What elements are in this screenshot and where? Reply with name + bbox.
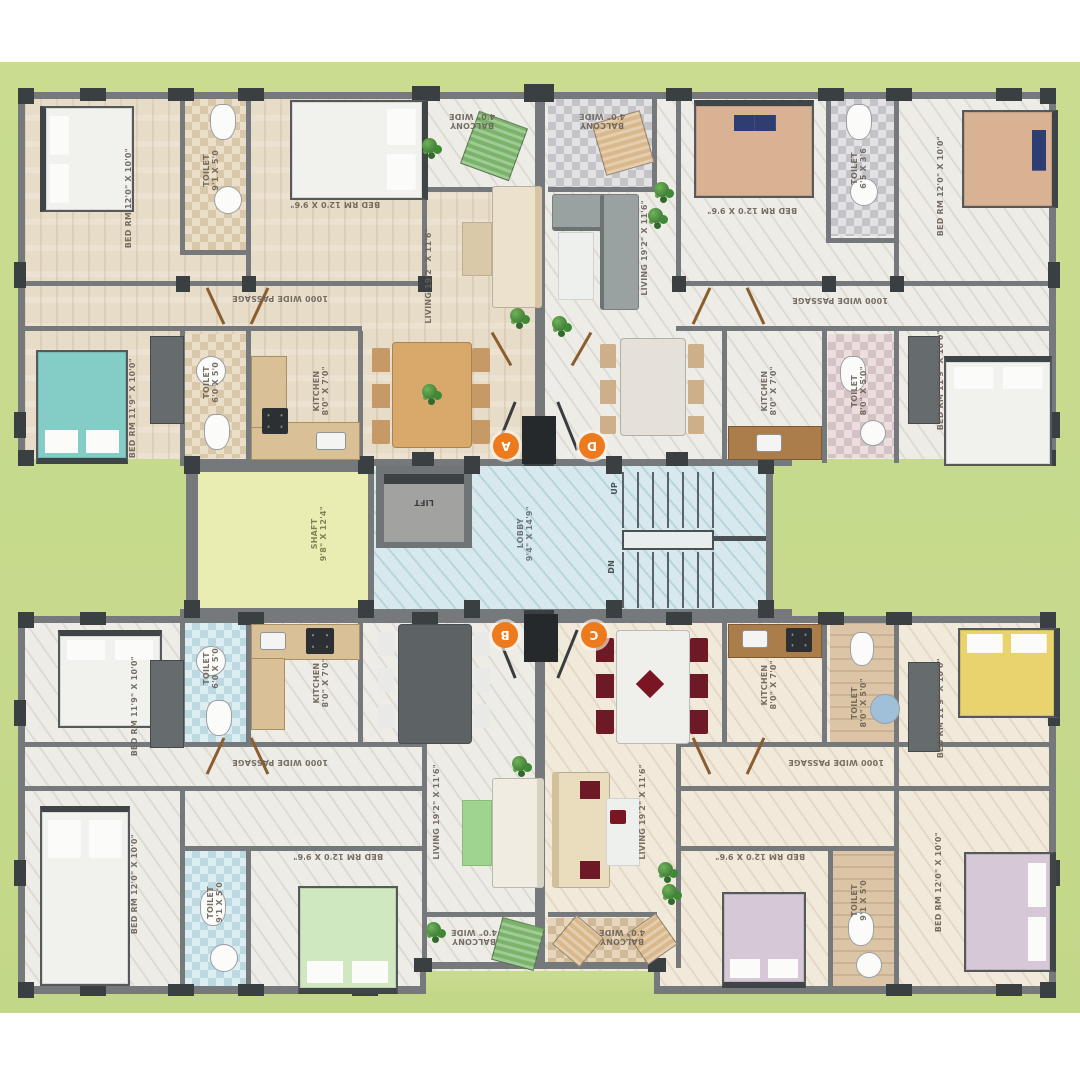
wall [676,742,681,968]
balcony-label-b: BALCONY 4'0" WIDE [434,928,514,946]
toilet-b2-sink [210,944,238,972]
passage-label-c: 1000 WIDE PASSAGE [756,758,916,767]
room-label-living-b: LIVING 19'2" X 11'6" [432,764,441,860]
column [18,450,34,466]
room-label-toilet-d1: TOILET 6'5 X 3'6 [850,148,868,189]
room-label-toilet-c1: TOILET 8'0" X 5'0" [850,678,868,727]
room-label-bed-c2: BED RM 12'0 X 9'6" [700,852,820,861]
wall [894,616,899,994]
column [358,456,374,474]
room-label-toilet-d2: TOILET 8'0" X 5'0" [850,366,868,415]
column [238,984,264,996]
column [238,88,264,101]
shaft-label: SHAFT 9'8" X 12'4" [310,506,328,561]
bed-c2 [722,892,806,988]
room-label-bed-c3: BED RM 12'0" X 10'0" [934,832,943,932]
rug-d [558,232,594,300]
wall [676,742,1050,747]
wall [246,92,251,285]
bed-b3 [298,886,398,994]
dining-chairs-b-left [378,632,394,732]
room-label-kitchen-d: KITCHEN 8'0" X 7'0" [760,366,778,415]
bed-b1 [58,630,162,728]
room-label-toilet-b1: TOILET 6'0 X 5'0 [202,648,220,689]
wall [894,92,899,285]
wall [676,786,898,791]
kitchen-a-sink [316,432,346,450]
wall [676,281,1050,286]
column [14,412,26,438]
room-label-kitchen-a: KITCHEN 8'0" X 7'0" [312,366,330,415]
column [168,88,194,101]
column [1048,262,1060,288]
wall [652,98,657,192]
wall [826,238,898,243]
column [412,86,440,101]
bed-b2 [40,806,130,986]
column [886,612,912,625]
column [80,88,106,101]
plant [510,308,525,323]
wall [180,250,248,255]
stair-flight-upper [622,472,714,528]
column [524,84,554,102]
balcony-label-c: BALCONY 4'0" WIDE [582,928,662,946]
dining-chairs-c-left [596,638,614,734]
toilet-a2-wc [204,414,230,450]
entry-door-bottom [524,614,558,662]
passage-label-d: 1000 WIDE PASSAGE [760,296,920,305]
wall [676,846,898,851]
column [412,452,434,466]
sofa-b [492,778,544,888]
room-label-toilet-b2: TOILET 9'1 X 5'0 [206,882,224,923]
column [464,600,480,618]
column [80,612,106,625]
wardrobe-a [150,336,184,424]
column [822,276,836,292]
room-label-bed-d1: BED RM 12'0 X 9'6" [692,206,812,215]
room-label-bed-c1: BED RM 11'9" X 10'0" [936,658,945,758]
room-label-bed-b3: BED RM 12'0 X 9'6" [278,852,398,861]
column [890,276,904,292]
dining-chairs-d-right [688,344,704,434]
wall [676,326,898,331]
column [606,600,622,618]
column [606,456,622,474]
stair-landing [622,530,714,550]
room-label-bed-b2: BED RM 12'0" X 10'0" [130,834,139,934]
wall [180,846,422,851]
passage-label-a: 1000 WIDE PASSAGE [200,294,360,303]
kitchen-b-stove [306,628,334,654]
sofa-a [492,186,542,308]
column [18,612,34,628]
toilet-c2-sink [856,952,882,978]
bed-d1 [694,100,814,198]
kitchen-d-sink [756,434,782,452]
passage-label-b: 1000 WIDE PASSAGE [200,758,360,767]
room-label-bed-a3: BED RM 11'9" X 10'0" [128,358,137,458]
column [996,984,1022,996]
column [14,262,26,288]
bed-a3 [36,350,128,464]
plant [512,756,527,771]
plant [654,182,669,197]
column [18,982,34,998]
plant [552,316,567,331]
entry-door-top [522,416,556,464]
stairs-dn-label: DN [607,560,616,574]
room-label-living-d: LIVING 19'2" X 11'6" [640,200,649,296]
wall [766,459,773,616]
kitchen-c-sink [742,630,768,648]
plant [422,384,437,399]
column [886,984,912,996]
room-label-bed-a2: BED RM 12'0 X 9'6" [270,200,400,209]
column [168,984,194,996]
wall [676,92,681,285]
cushion-c [610,810,626,824]
bed-a1 [40,106,134,212]
lift-cab [384,474,464,542]
room-label-toilet-c2: TOILET 9'1 X 5'0 [850,880,868,921]
toilet-d2-sink [860,420,886,446]
wall [548,187,656,192]
column [242,276,256,292]
column [184,456,200,474]
lift-label: LIFT [402,498,446,507]
flat-d-marker: D [579,433,605,459]
bed-d3 [944,356,1052,466]
wall [426,912,538,917]
wall [894,331,899,463]
column [176,276,190,292]
column [1040,982,1056,998]
site-ground-patch [426,971,654,994]
column [1040,612,1056,628]
column [358,600,374,618]
toilet-d1-wc [846,104,872,140]
dining-chairs-a-right [472,348,490,444]
bed-a2 [290,100,428,200]
column [464,456,480,474]
wall [180,609,792,616]
wall [246,846,251,994]
dining-table-d [620,338,686,436]
sofa-d-side [600,194,639,310]
wall [826,92,831,242]
wall [186,459,192,616]
shaft-room [192,466,374,614]
bed-c3 [964,852,1056,972]
plant [422,138,437,153]
kitchen-c-stove [786,628,812,652]
wall [180,459,792,466]
wall [22,786,422,791]
room-label-toilet-a1: TOILET 9'1 X 5'0 [202,150,220,191]
wall [22,281,422,286]
kitchen-b-sink [260,632,286,650]
wall [822,616,827,746]
column [818,88,844,101]
sofa-c [552,772,610,888]
bed-d2 [962,110,1058,208]
column [996,88,1022,101]
column [758,600,774,618]
flat-a-marker: A [493,433,519,459]
wardrobe-b [150,660,184,748]
column [414,958,432,972]
flat-c-marker: C [581,622,607,648]
toilet-b1-wc [206,700,232,736]
wall [422,742,427,968]
wall [894,786,1054,791]
column [14,700,26,726]
room-label-bed-d2: BED RM 12'0" X 10'0" [936,136,945,236]
wall [722,331,727,463]
room-label-kitchen-c: KITCHEN 8'0" X 7'0" [760,660,778,709]
column [886,88,912,101]
toilet-c1-wc [850,632,874,666]
kitchen-b-counter2 [251,658,285,730]
wall [722,616,727,746]
column [666,88,692,101]
wall [180,786,185,994]
column [672,276,686,292]
wall [894,326,1054,331]
wall [180,92,185,252]
bed-c1 [958,628,1060,718]
room-label-bed-d3: BED RM 11'9" X 10'0" [936,330,945,430]
plant [658,862,673,877]
balcony-label-d: BALCONY 4'0" WIDE [562,112,642,130]
column [14,860,26,886]
rug-c [606,798,640,866]
column [666,452,688,466]
balcony-label-a: BALCONY 4'0" WIDE [432,112,512,130]
plant [648,208,663,223]
stair-rail [712,536,766,541]
rug-a [462,222,492,276]
wall [18,616,25,994]
coffee-table-b [462,800,492,866]
dining-chairs-d-left [600,344,616,434]
wall [548,912,656,917]
room-label-living-c: LIVING 19'2" X 11'6" [638,764,647,860]
room-label-bed-a1: BED RM 12'0" X 10'0" [124,148,133,248]
column [1040,88,1056,104]
lobby-label: LOBBY 9'4" X 14'9" [516,506,534,561]
toilet-c1-shower [870,694,900,724]
column [18,88,34,104]
room-label-bed-b1: BED RM 11'9" X 10'0" [130,656,139,756]
plant [662,884,677,899]
room-label-living-a: LIVING 19'2" X 11'6" [424,228,433,324]
wall [822,331,827,463]
wall [828,846,833,994]
dining-chairs-b-right [474,632,490,732]
floor-plan-canvas: BED RM 12'0" X 10'0" TOILET 9'1 X 5'0 BE… [0,0,1080,1080]
room-label-toilet-a2: TOILET 6'0 X 5'0 [202,362,220,403]
stair-flight-lower [622,552,714,608]
stairs-up-label: UP [610,482,619,495]
dining-table-b [398,624,472,744]
toilet-a1-wc [210,104,236,140]
wall [22,326,362,331]
kitchen-a-stove [262,408,288,434]
dining-chairs-a-left [372,348,390,444]
flat-b-marker: B [492,622,518,648]
room-label-kitchen-b: KITCHEN 8'0" X 7'0" [312,658,330,707]
column [666,612,692,625]
dining-chairs-c-right [690,638,708,734]
column [184,600,200,618]
